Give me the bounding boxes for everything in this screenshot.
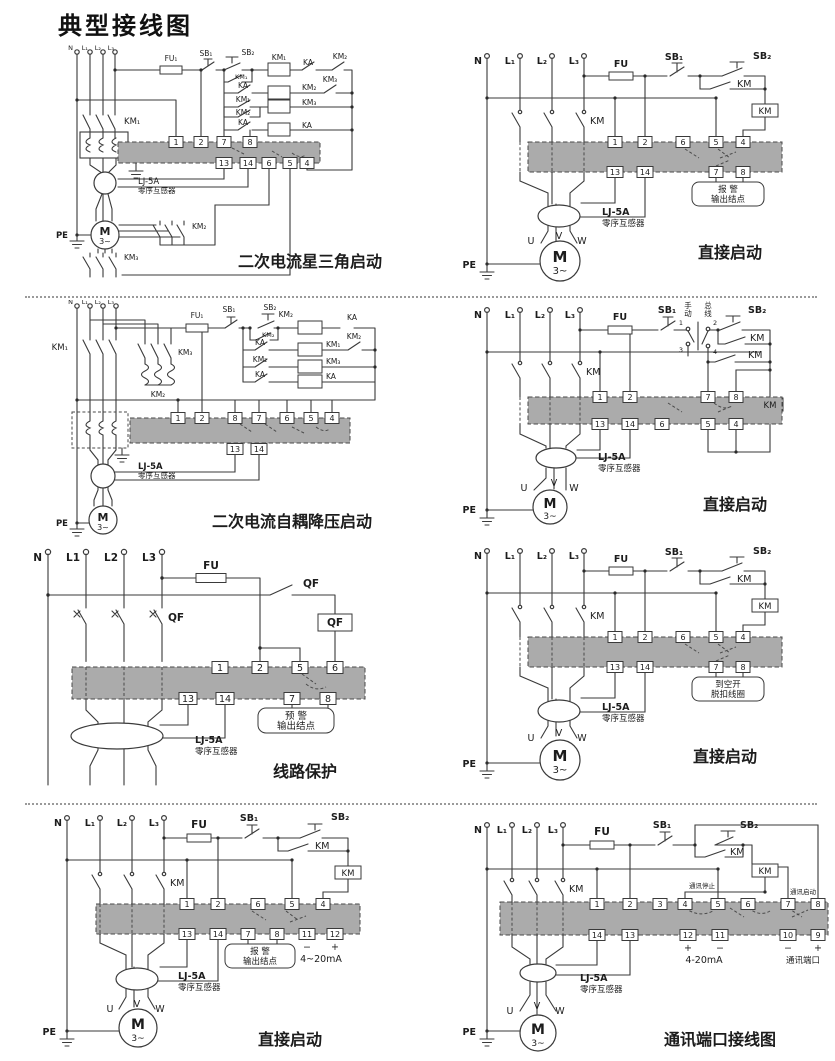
coil-label: KM <box>342 869 355 879</box>
pe-label: PE <box>463 759 476 770</box>
ct-coil-icon <box>86 138 116 152</box>
svg-text:6: 6 <box>680 633 685 642</box>
output-box-label: 脱扣线圈 <box>711 689 745 700</box>
svg-text:5: 5 <box>287 159 292 168</box>
selector-pin: 3 <box>679 346 683 354</box>
fuse-icon <box>609 567 633 575</box>
phase-label: L₁ <box>82 45 89 52</box>
phase-label: L₁ <box>505 551 515 562</box>
fuse-icon <box>609 72 633 80</box>
pe-label: PE <box>463 260 476 271</box>
contactor-coil-km3 <box>268 100 290 113</box>
svg-text:13: 13 <box>595 420 605 429</box>
row-separator <box>25 803 817 805</box>
winding-label: U <box>528 733 535 744</box>
svg-text:7: 7 <box>713 663 718 672</box>
motor-label: 3~ <box>543 512 556 522</box>
svg-text:6: 6 <box>266 159 271 168</box>
phase-label: L₁ <box>85 818 95 829</box>
contact-label: KM <box>750 333 764 344</box>
svg-text:1: 1 <box>594 900 599 909</box>
contactor-coil-km1 <box>298 343 322 356</box>
button-label: SB₂ <box>242 48 255 57</box>
ground-icon <box>115 448 129 462</box>
phase-label: N <box>33 552 42 564</box>
ct-label: LJ-5A <box>598 452 626 463</box>
phase-label: L₃ <box>569 56 579 67</box>
phase-label: L₁ <box>82 300 89 306</box>
analog-output-label: 4-20mA <box>685 955 723 966</box>
contact-label: KA <box>238 118 249 127</box>
output-box-label: 输出结点 <box>243 956 278 967</box>
winding-label: U <box>507 1006 514 1017</box>
phase-label: N <box>474 310 482 321</box>
contact-label: KM <box>748 350 762 361</box>
contact-label: KM <box>170 878 184 889</box>
contact-label: KM <box>737 79 751 90</box>
svg-text:2: 2 <box>627 900 632 909</box>
svg-text:7: 7 <box>256 414 261 423</box>
svg-text:7: 7 <box>713 168 718 177</box>
button-label: SB₁ <box>200 49 213 58</box>
svg-text:14: 14 <box>243 159 253 168</box>
contact-label: KM <box>590 116 604 127</box>
ct-label: 零序互感器 <box>580 984 623 995</box>
svg-text:14: 14 <box>254 445 264 454</box>
coil-label: KA <box>302 121 313 130</box>
relay-coil-ka <box>268 123 290 136</box>
ct-label: 零序互感器 <box>598 463 641 474</box>
svg-text:5: 5 <box>705 420 710 429</box>
winding-label: U <box>528 236 535 247</box>
svg-text:12: 12 <box>683 931 693 940</box>
coil-label: KM₃ <box>302 98 316 107</box>
phase-label: L₂ <box>117 818 127 829</box>
phase-label: L₃ <box>108 300 115 306</box>
pe-label: PE <box>463 1027 476 1038</box>
contact-label: KM <box>730 847 744 858</box>
svg-text:6: 6 <box>659 420 664 429</box>
svg-text:14: 14 <box>592 931 602 940</box>
fuse-label: FU <box>614 59 628 70</box>
phase-label: L₃ <box>565 310 575 321</box>
svg-text:7: 7 <box>785 900 790 909</box>
manual-page: 典型接线图 <box>0 0 835 1061</box>
button-label: SB₁ <box>653 820 671 831</box>
polarity-label: − <box>716 943 724 954</box>
relay-coil-ka <box>298 375 322 388</box>
ct-ring-icon <box>116 968 158 990</box>
winding-label: V <box>534 1001 541 1012</box>
motor-label: 3~ <box>553 266 568 277</box>
winding-label: W <box>569 483 579 494</box>
svg-text:8: 8 <box>740 663 745 672</box>
svg-text:8: 8 <box>274 930 279 939</box>
svg-text:5: 5 <box>308 414 313 423</box>
contact-label: KM₂ <box>333 52 347 61</box>
selector-pin: 4 <box>713 348 717 356</box>
contact-label: KM₂ <box>192 222 206 231</box>
svg-text:14: 14 <box>213 930 223 939</box>
phase-label: N <box>68 300 73 306</box>
contactor-coil-km1 <box>268 63 290 76</box>
output-box-label: 输出结点 <box>711 194 746 205</box>
analog-output-label: 4~20mA <box>300 954 342 965</box>
phase-label: L₂ <box>535 310 545 321</box>
svg-text:8: 8 <box>740 168 745 177</box>
ct-secondary-box <box>72 412 128 448</box>
motor-label: 3~ <box>531 1039 544 1049</box>
polarity-label: + <box>814 943 822 954</box>
winding-label: W <box>577 733 587 744</box>
fuse-label: FU <box>613 312 627 323</box>
contact-label: KM₁ <box>236 95 250 104</box>
button-label: SB₂ <box>331 812 349 823</box>
svg-text:6: 6 <box>284 414 289 423</box>
coil-label: KM₃ <box>326 357 340 366</box>
svg-text:13: 13 <box>182 694 194 705</box>
contact-label: KM <box>315 841 329 852</box>
button-label: SB₂ <box>748 305 766 316</box>
output-box-label: 报 警 <box>718 184 738 195</box>
phase-label: L₂ <box>95 45 102 52</box>
winding-label: W <box>555 1006 565 1017</box>
svg-text:4: 4 <box>682 900 687 909</box>
contact-label: KA <box>347 313 358 322</box>
output-box-label: 到空开 <box>715 679 741 690</box>
contact-label: KM <box>737 574 751 585</box>
ct-label: LJ-5A <box>580 973 608 984</box>
button-label: SB₁ <box>658 305 676 316</box>
ct-label: 零序互感器 <box>602 218 645 229</box>
svg-text:6: 6 <box>332 663 338 674</box>
diagram-star-delta-start: N L₁ L₂ L₃ FU₁ SB₁ SB₂ KM₁ KA KM₂ KM₁ KA… <box>10 45 415 292</box>
winding-label: W <box>577 236 587 247</box>
contact-label: KM₁ <box>235 73 248 81</box>
selector-label-manual: 动 <box>684 308 692 318</box>
button-label: SB₂ <box>740 820 758 831</box>
contact-label: KA <box>255 338 266 347</box>
winding-label: V <box>551 478 558 489</box>
svg-text:13: 13 <box>230 445 240 454</box>
winding-label: U <box>521 483 528 494</box>
selector-pin: 2 <box>713 319 717 327</box>
ct-ring-icon <box>538 700 580 722</box>
button-label: SB₁ <box>223 305 236 314</box>
output-box-label: 输出结点 <box>277 720 316 732</box>
caption: 直接启动 <box>693 747 757 766</box>
caption: 线路保护 <box>273 762 337 781</box>
fuse-label: FU₁ <box>191 311 204 320</box>
phase-label: N <box>474 551 482 562</box>
contact-label: KM₂ <box>151 390 165 399</box>
svg-text:5: 5 <box>713 633 718 642</box>
motor-label: 3~ <box>97 523 109 532</box>
svg-text:8: 8 <box>247 138 252 147</box>
ground-icon <box>60 1031 74 1046</box>
svg-text:8: 8 <box>232 414 237 423</box>
contact-label: KM₃ <box>323 75 337 84</box>
phase-label: L₂ <box>537 551 547 562</box>
polarity-label: + <box>684 943 692 954</box>
motor-label: 3~ <box>131 1034 144 1044</box>
ct-ring-icon <box>94 172 116 194</box>
polarity-label: − <box>784 943 792 954</box>
autotransformer-coil-icon <box>142 364 175 385</box>
diagram-direct-start-manual-bus: N L₁ L₂ L₃ FU SB₁ 手 动 总 线 1 3 2 4 SB₂ KM… <box>430 300 835 540</box>
svg-text:14: 14 <box>640 168 650 177</box>
svg-text:8: 8 <box>815 900 820 909</box>
coil-label: KM₂ <box>302 83 316 92</box>
svg-text:12: 12 <box>330 930 340 939</box>
ground-icon <box>480 264 494 279</box>
svg-text:4: 4 <box>733 420 738 429</box>
fuse-label: FU <box>191 819 207 831</box>
phase-label: L₃ <box>569 551 579 562</box>
phase-label: L₃ <box>149 818 159 829</box>
diagram-direct-start-trip-coil: N L₁ L₂ L₃ FU SB₁ SB₂ KM KM KM 1 2 6 5 4… <box>430 540 835 798</box>
button-label: SB₂ <box>753 51 771 62</box>
pe-label: PE <box>56 231 68 241</box>
contact-label: KA <box>238 81 249 90</box>
selector-label-bus: 线 <box>704 308 712 318</box>
svg-text:13: 13 <box>219 159 229 168</box>
svg-text:11: 11 <box>302 930 312 939</box>
caption: 通讯端口接线图 <box>664 1030 776 1049</box>
fuse-label: FU <box>614 554 628 565</box>
contact-label: KM₁ <box>52 343 68 353</box>
pe-label: PE <box>463 505 476 516</box>
svg-text:1: 1 <box>612 633 617 642</box>
pe-label: PE <box>56 519 68 529</box>
phase-label: L2 <box>104 552 118 564</box>
selector-pin: 1 <box>679 319 683 327</box>
polarity-label: + <box>331 942 339 953</box>
svg-text:14: 14 <box>640 663 650 672</box>
pe-label: PE <box>43 1027 56 1038</box>
svg-text:8: 8 <box>325 694 331 705</box>
fuse-icon <box>608 326 632 334</box>
phase-label: L₃ <box>108 45 115 52</box>
phase-label: N <box>54 818 62 829</box>
svg-text:13: 13 <box>610 663 620 672</box>
motor-label: M <box>531 1022 545 1038</box>
svg-text:14: 14 <box>219 694 231 705</box>
svg-text:7: 7 <box>245 930 250 939</box>
coil-label: KM₁ <box>272 53 286 62</box>
winding-label: U <box>107 1004 114 1015</box>
caption: 直接启动 <box>258 1030 322 1049</box>
svg-text:5: 5 <box>715 900 720 909</box>
svg-text:5: 5 <box>289 900 294 909</box>
button-label: SB₁ <box>665 547 683 558</box>
svg-text:1: 1 <box>175 414 180 423</box>
breaker-label: QF <box>303 578 319 590</box>
motor-label: M <box>131 1017 145 1033</box>
ground-icon <box>129 163 143 178</box>
contact-label: KM₃ <box>178 348 192 357</box>
button-label: SB₂ <box>753 546 771 557</box>
button-label: SB₁ <box>665 52 683 63</box>
motor-label: M <box>553 747 568 765</box>
phase-label: L₂ <box>522 825 532 836</box>
svg-text:2: 2 <box>642 138 647 147</box>
svg-text:6: 6 <box>680 138 685 147</box>
button-label: SB₂ <box>264 303 277 312</box>
button-label: SB₁ <box>240 813 258 824</box>
comm-stop-label: 通讯停止 <box>689 881 716 890</box>
contactor-coil-km3 <box>298 360 322 373</box>
contact-label: KM₂ <box>347 332 361 341</box>
phase-label: N <box>474 825 482 836</box>
ct-label: 零序互感器 <box>178 982 221 993</box>
contact-label: KM₂ <box>236 108 250 117</box>
ground-icon <box>70 523 84 536</box>
ct-coil-icon <box>86 421 116 435</box>
coil-label: KM <box>759 602 772 612</box>
ground-icon <box>480 510 494 525</box>
breaker-box-label: QF <box>327 617 343 629</box>
svg-text:4: 4 <box>320 900 325 909</box>
phase-label: N <box>474 56 482 67</box>
svg-text:13: 13 <box>182 930 192 939</box>
fuse-icon <box>196 574 226 583</box>
contact-label: KA <box>255 370 266 379</box>
svg-text:2: 2 <box>198 138 203 147</box>
output-box-label: 报 警 <box>250 946 270 957</box>
diagram-communication-port: N L₁ L₂ L₃ FU SB₁ SB₂ KM KM KM 通讯停止 通讯启动… <box>430 807 835 1061</box>
ct-label: LJ-5A <box>602 207 630 218</box>
contactor-coil-km2 <box>298 321 322 334</box>
svg-text:2: 2 <box>642 633 647 642</box>
diagram-direct-start-4-20ma: N L₁ L₂ L₃ FU SB₁ SB₂ KM KM KM 1 2 6 5 4… <box>10 807 415 1061</box>
phase-label: L₂ <box>95 300 102 306</box>
ground-icon <box>70 235 84 248</box>
svg-text:7: 7 <box>221 138 226 147</box>
contact-label: KM <box>569 884 583 895</box>
fuse-label: FU <box>594 826 610 838</box>
ct-label: 零序互感器 <box>602 713 645 724</box>
coil-label: KM <box>759 107 772 117</box>
svg-text:6: 6 <box>255 900 260 909</box>
breaker-label: QF <box>168 612 184 624</box>
ct-label: LJ-5A <box>178 971 206 982</box>
ct-label: 零序互感器 <box>138 470 176 480</box>
contact-label: KM₃ <box>124 253 138 262</box>
winding-label: V <box>556 728 563 739</box>
diagram-line-protection: N L1 L2 L3 FU QF QF QF 1 2 5 6 13 14 7 8… <box>10 540 415 798</box>
contact-label: KM₂ <box>253 355 267 364</box>
svg-text:2: 2 <box>257 663 263 674</box>
winding-label: W <box>155 1004 165 1015</box>
contact-label: KM₁ <box>124 117 140 127</box>
motor-label: M <box>553 248 568 266</box>
comm-port-label: 通讯端口 <box>786 955 820 966</box>
svg-text:1: 1 <box>173 138 178 147</box>
fuse-icon <box>160 66 182 74</box>
phase-label: L₂ <box>537 56 547 67</box>
phase-label: L₁ <box>505 310 515 321</box>
ct-label: LJ-5A <box>602 702 630 713</box>
polarity-label: − <box>303 942 311 953</box>
svg-text:4: 4 <box>740 633 745 642</box>
svg-text:2: 2 <box>215 900 220 909</box>
ground-icon <box>480 763 494 778</box>
contact-label: KM <box>586 367 600 378</box>
ct-label: LJ-5A <box>195 735 223 746</box>
contact-label: KM <box>590 611 604 622</box>
ct-ring-icon <box>538 205 580 227</box>
phase-label: L₁ <box>505 56 515 67</box>
contactor-coil-km2 <box>268 86 290 99</box>
winding-label: V <box>556 231 563 242</box>
caption: 二次电流自耦降压启动 <box>212 512 372 531</box>
diagram-direct-start-alarm: N L₁ L₂ L₃ FU SB₁ SB₂ KM KM KM 1 2 6 5 4… <box>430 45 835 295</box>
phase-label: L₁ <box>497 825 507 836</box>
svg-text:1: 1 <box>597 393 602 402</box>
svg-text:11: 11 <box>715 931 725 940</box>
ct-label: 零序互感器 <box>195 746 238 757</box>
svg-text:2: 2 <box>627 393 632 402</box>
svg-text:9: 9 <box>815 931 820 940</box>
caption: 二次电流星三角启动 <box>238 252 382 271</box>
svg-text:7: 7 <box>289 694 295 705</box>
svg-text:3: 3 <box>657 900 662 909</box>
svg-text:4: 4 <box>740 138 745 147</box>
svg-text:2: 2 <box>199 414 204 423</box>
contact-label: KA <box>303 58 314 67</box>
svg-text:14: 14 <box>625 420 635 429</box>
fuse-label: FU <box>203 560 219 572</box>
svg-text:8: 8 <box>733 393 738 402</box>
coil-label: KM <box>759 867 772 877</box>
coil-label: KM₁ <box>326 340 340 349</box>
row-separator <box>25 296 817 298</box>
phase-label: N <box>68 45 73 52</box>
comm-start-label: 通讯启动 <box>790 887 817 896</box>
page-title: 典型接线图 <box>58 6 193 41</box>
ct-ring-icon <box>520 964 556 982</box>
ct-ring-icon <box>71 723 163 749</box>
phase-label: L1 <box>66 552 80 564</box>
winding-label: V <box>134 999 141 1010</box>
wires <box>485 935 630 1033</box>
svg-text:6: 6 <box>745 900 750 909</box>
svg-text:4: 4 <box>304 159 309 168</box>
svg-text:10: 10 <box>783 931 793 940</box>
motor-label: 3~ <box>99 237 111 246</box>
phase-label: L₃ <box>548 825 558 836</box>
coil-label: KA <box>326 372 337 381</box>
coil-label: KM₂ <box>279 310 293 319</box>
diagram-autotransformer-start: N L₁ L₂ L₃ KM₁ KM₃ KM₂ FU₁ SB₁ SB₂ KM₂ K… <box>10 300 415 537</box>
svg-text:13: 13 <box>625 931 635 940</box>
caption: 直接启动 <box>703 495 767 514</box>
phase-label: L3 <box>142 552 156 564</box>
ct-ring-icon <box>536 448 576 468</box>
caption: 直接启动 <box>698 243 762 262</box>
svg-text:1: 1 <box>184 900 189 909</box>
coil-label: KM <box>764 401 777 411</box>
ground-icon <box>480 1031 494 1046</box>
fuse-icon <box>187 834 211 842</box>
svg-text:5: 5 <box>297 663 303 674</box>
svg-text:5: 5 <box>713 138 718 147</box>
svg-text:1: 1 <box>217 663 223 674</box>
fuse-label: FU₁ <box>165 54 178 63</box>
fuse-icon <box>590 841 614 849</box>
svg-text:13: 13 <box>610 168 620 177</box>
